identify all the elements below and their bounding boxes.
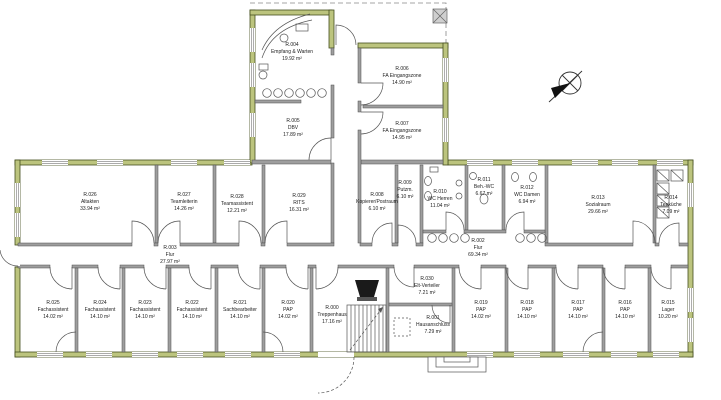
room-label-r016: R.016PAP14.10 m² [615,300,635,321]
room-label-r001: R.001Hausanschluss7.29 m² [416,315,450,336]
window-symbol [611,352,637,357]
window-symbol [86,352,112,357]
room-label-r014: R.014Teeküche7.09 m² [660,195,681,216]
room-label-r012: R.012WC Damen6.94 m² [514,185,540,206]
room-label-r030: R.030Elt-Verteiler7.21 m² [414,276,440,297]
window-symbol [42,160,68,165]
window-symbol [572,160,598,165]
room-label-r027: R.027Teamleiterin14.26 m² [171,192,198,213]
window-symbol [274,352,300,357]
exit-door-opening [318,352,354,357]
room-label-r009: R.009Putzm.6.10 m² [397,180,414,201]
window-symbol [612,160,638,165]
room-label-r023: R.023Fachassistent14.10 m² [130,300,161,321]
window-symbol [132,352,158,357]
waiting-chairs [259,71,326,97]
stairs [347,305,386,352]
floor-plan-canvas: R.004Empfang & Warten19.92 m² R.005DBV17… [0,0,721,400]
room-label-r007: R.007FA Eingangszone14.95 m² [383,121,422,142]
window-symbol [250,63,255,87]
window-symbol [467,352,493,357]
window-symbols [15,28,693,357]
room-label-r004: R.004Empfang & Warten19.92 m² [271,42,313,63]
room-label-r029: R.029RITS16.31 m² [289,193,309,214]
window-symbol [563,352,589,357]
room-label-r025: R.025Fachassistent14.02 m² [38,300,69,321]
server-cabinet-symbol [355,280,379,301]
room-label-r026: R.026Altakten33.94 m² [80,192,100,213]
window-symbol [688,183,693,207]
room-label-r000: R.000Treppenhaus17.16 m² [317,305,346,326]
window-symbol [177,352,203,357]
room-label-r005: R.005DBV17.89 m² [283,118,303,139]
property-line [250,3,446,45]
window-symbol [467,160,493,165]
window-symbol [225,352,251,357]
window-symbol [224,160,250,165]
window-symbol [97,160,123,165]
room-label-r002: R.002Flur69.34 m² [468,238,488,259]
window-symbol [171,160,197,165]
window-symbol [15,213,20,237]
window-symbol [688,318,693,342]
equipment-dashed-box [394,318,410,336]
room-label-r018: R.018PAP14.10 m² [517,300,537,321]
room-label-r019: R.019PAP14.02 m² [471,300,491,321]
window-symbol [512,160,538,165]
window-symbol [15,183,20,207]
window-symbol [37,352,63,357]
room-label-r024: R.024Fachassistent14.10 m² [85,300,116,321]
room-label-r020: R.020PAP14.02 m² [278,300,298,321]
west-door-opening [15,248,20,266]
exterior-steps [428,357,486,372]
room-label-r006: R.006FA Eingangszone14.90 m² [383,66,422,87]
door-arcs [0,25,679,393]
boundary-marker [433,9,447,23]
room-label-r003: R.003Flur27.97 m² [160,245,180,266]
room-label-r008: R.008Kopierer/Postraum6.10 m² [356,192,398,213]
room-label-r021: R.021Sachbearbeiter14.10 m² [223,300,257,321]
room-label-r017: R.017PAP14.10 m² [568,300,588,321]
room-label-r028: R.028Teamassistent12.21 m² [221,194,253,215]
window-symbol [653,352,679,357]
room-label-r015: R.015Lager10.20 m² [658,300,678,321]
window-symbol [657,160,683,165]
room-label-r013: R.013Sozialraum29.66 m² [585,195,610,216]
window-symbol [514,352,540,357]
room-label-r010: R.010WC Herren11.04 m² [427,189,452,210]
window-symbol [688,288,693,312]
window-symbol [443,118,448,142]
window-symbol [250,113,255,137]
window-symbol [250,28,255,52]
compass-icon [549,71,582,102]
room-label-r022: R.022Fachassistent14.10 m² [177,300,208,321]
window-symbol [443,58,448,82]
room-label-r011: R.011Beh.-WC6.67 m² [474,177,494,198]
